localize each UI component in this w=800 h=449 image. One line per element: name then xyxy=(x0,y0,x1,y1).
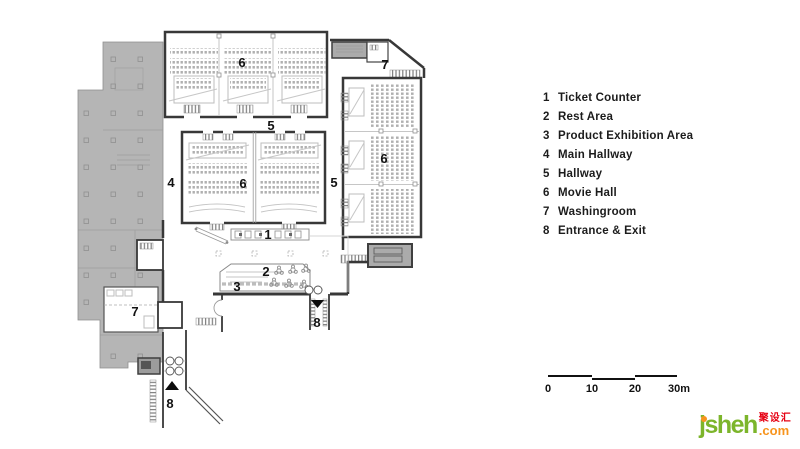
legend-item-hallway: 5 Hallway xyxy=(543,164,693,183)
legend: 1 Ticket Counter 2 Rest Area 3 Product E… xyxy=(543,88,693,240)
logo-side-stack: 聚设汇 .com xyxy=(759,414,792,437)
scale-tick-30: 30m xyxy=(668,383,690,395)
label-movie-hall-center: 6 xyxy=(239,176,246,191)
movie-hall-block-center xyxy=(182,130,325,231)
site-logo: jsheh 聚设汇 .com xyxy=(699,412,792,438)
escalator-area xyxy=(341,237,412,294)
legend-item-entrance-exit: 8 Entrance & Exit xyxy=(543,221,693,240)
legend-number: 6 xyxy=(543,187,558,199)
label-exit-right: 8 xyxy=(313,315,320,330)
legend-number: 2 xyxy=(543,111,558,123)
legend-label: Hallway xyxy=(558,168,602,180)
washingroom-left xyxy=(104,287,182,332)
legend-label: Movie Hall xyxy=(558,187,617,199)
logo-tld-text: .com xyxy=(759,425,792,437)
scale-bar: 0 10 20 30m xyxy=(545,376,690,395)
legend-label: Main Hallway xyxy=(558,149,633,161)
revolving-door-icon xyxy=(164,357,186,375)
legend-label: Ticket Counter xyxy=(558,92,641,104)
legend-number: 4 xyxy=(543,149,558,161)
legend-number: 7 xyxy=(543,206,558,218)
label-movie-hall-right: 6 xyxy=(380,151,387,166)
legend-label: Washingroom xyxy=(558,206,636,218)
legend-item-exhibition-area: 3 Product Exhibition Area xyxy=(543,126,693,145)
legend-label: Entrance & Exit xyxy=(558,225,646,237)
legend-label: Rest Area xyxy=(558,111,613,123)
top-right-washingroom xyxy=(330,40,424,78)
legend-number: 1 xyxy=(543,92,558,104)
label-washingroom-top: 7 xyxy=(381,57,388,72)
legend-item-movie-hall: 6 Movie Hall xyxy=(543,183,693,202)
label-washingroom-left: 7 xyxy=(131,304,138,319)
label-main-hallway: 4 xyxy=(167,175,175,190)
scale-tick-20: 20 xyxy=(629,383,641,395)
legend-number: 8 xyxy=(543,225,558,237)
legend-label: Product Exhibition Area xyxy=(558,130,693,142)
up-arrow-icon xyxy=(165,381,179,390)
label-exit-bottom: 8 xyxy=(166,396,173,411)
logo-wordmark: jsheh xyxy=(699,412,757,438)
legend-number: 5 xyxy=(543,168,558,180)
label-movie-hall-top: 6 xyxy=(238,55,245,70)
label-exhibition-area: 3 xyxy=(233,279,240,294)
revolving-door-icon xyxy=(305,286,323,294)
floor-plan-page: 6 7 5 4 6 5 6 1 2 3 7 8 8 0 10 20 30m 1 … xyxy=(0,0,800,449)
legend-item-washingroom: 7 Washingroom xyxy=(543,202,693,221)
legend-item-ticket-counter: 1 Ticket Counter xyxy=(543,88,693,107)
label-ticket-counter: 1 xyxy=(264,227,271,242)
movie-hall-block-top xyxy=(165,32,327,120)
legend-item-rest-area: 2 Rest Area xyxy=(543,107,693,126)
legend-item-main-hallway: 4 Main Hallway xyxy=(543,145,693,164)
scale-tick-0: 0 xyxy=(545,383,551,395)
logo-j-dot-icon xyxy=(701,416,707,422)
label-hallway-upper: 5 xyxy=(267,118,274,133)
scale-tick-10: 10 xyxy=(586,383,598,395)
logo-name-text: jsheh xyxy=(699,411,757,439)
label-hallway-right: 5 xyxy=(330,175,337,190)
label-rest-area: 2 xyxy=(262,264,269,279)
legend-number: 3 xyxy=(543,130,558,142)
